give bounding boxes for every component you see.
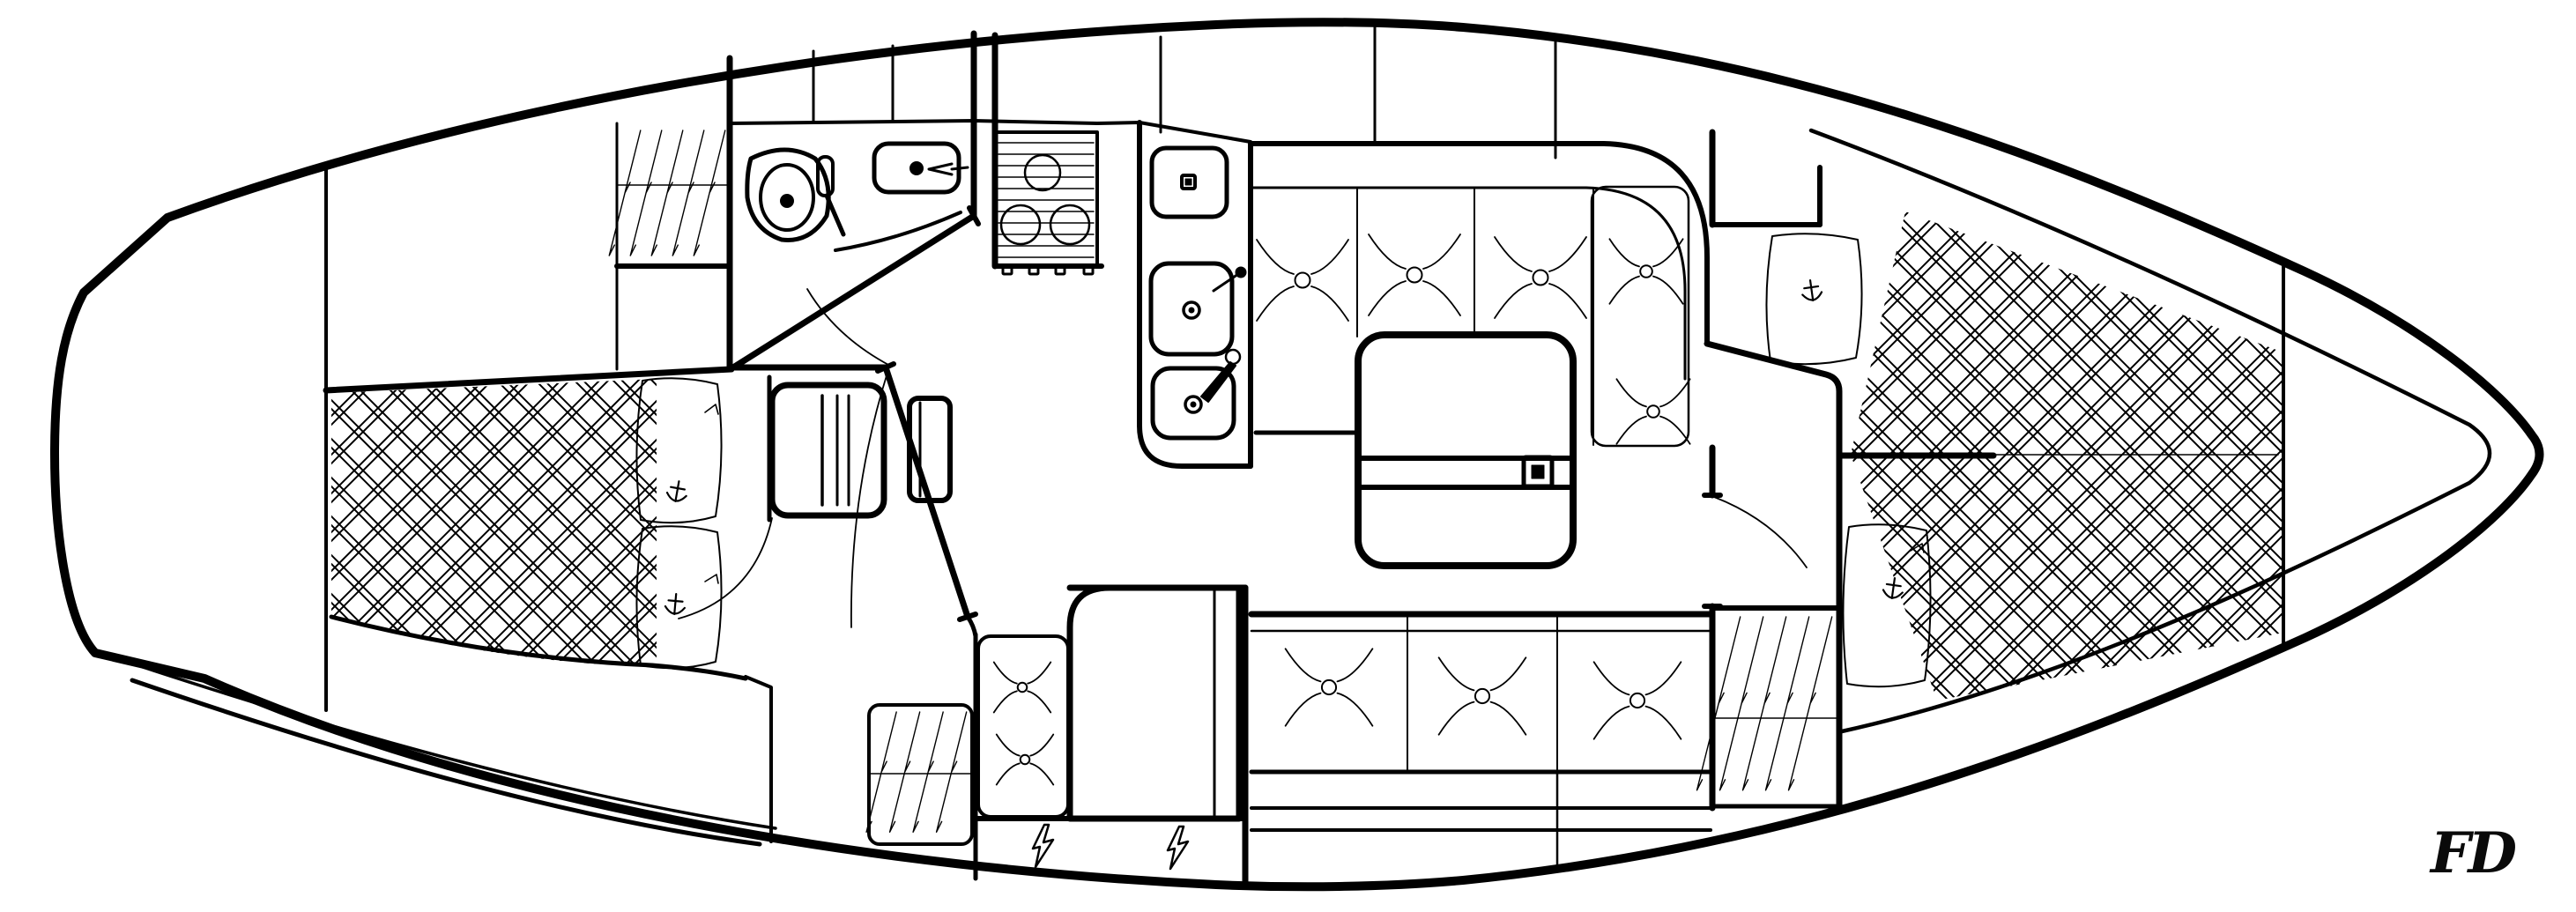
tuft-ray — [1311, 286, 1348, 321]
hatch-line — [2090, 0, 2576, 912]
hatch-line — [0, 0, 330, 912]
hatch-line — [1170, 0, 2316, 912]
tuft-ray — [1257, 286, 1294, 321]
hanging-locker — [869, 705, 972, 844]
tufted-button-icon — [1630, 693, 1644, 708]
hatch-line — [617, 0, 1763, 912]
hatch-line — [1479, 0, 2576, 912]
hatch-line — [1102, 0, 2247, 912]
tuft-ray — [1423, 234, 1460, 269]
hatch-line — [1160, 0, 2305, 912]
hatch-line — [733, 0, 1879, 912]
anchor-icon — [1882, 577, 1904, 600]
hatch-line — [2099, 0, 2576, 912]
hatch-line — [0, 0, 640, 912]
tuft-ray — [1028, 662, 1050, 683]
hatch-line — [1644, 0, 2576, 912]
tuft-ray — [1311, 240, 1348, 274]
hatch-line — [203, 0, 1348, 912]
hatch-line — [0, 0, 252, 912]
hatch-line — [620, 0, 1766, 912]
hatch-line — [2110, 0, 2576, 912]
hatch-line — [629, 0, 1775, 912]
port-corner-cushion — [1592, 187, 1689, 446]
tufted-button-icon — [1018, 683, 1028, 693]
hatch-line — [0, 0, 1105, 912]
hatch-line — [2246, 0, 2576, 912]
hatch-line — [1489, 0, 2576, 912]
hatch-line — [2101, 0, 2576, 912]
hanging-locker-hatch — [1788, 617, 1831, 790]
pillow-fold-mark — [705, 575, 718, 583]
hatch-line — [1673, 0, 2576, 912]
hanging-locker-hatch — [1697, 617, 1741, 790]
port-settee-back-outer — [1251, 144, 1707, 344]
tufted-button-icon — [1322, 680, 1336, 694]
hatch-line — [0, 0, 631, 912]
tuft-ray — [1616, 417, 1646, 444]
door-swing-arc — [807, 289, 890, 366]
hatch-line — [1636, 0, 2576, 912]
floorplan-canvas: FD — [0, 0, 2576, 912]
hatch-line — [1905, 0, 2576, 912]
hatch-line — [0, 0, 797, 912]
hatch-line — [192, 0, 1338, 912]
hanging-locker-hatch — [890, 712, 920, 832]
artist-signature: FD — [2429, 820, 2517, 886]
port-settee-back-inner — [1251, 188, 1685, 379]
hatch-line — [0, 0, 282, 912]
hanging-locker-hatch — [866, 712, 896, 832]
hanging-locker-hatch — [913, 712, 943, 832]
hatch-line — [1440, 0, 2576, 912]
hatch-line — [1091, 0, 2237, 912]
stove-foot — [1003, 266, 1012, 274]
hatch-line — [2207, 0, 2576, 912]
hatch-line — [0, 0, 805, 912]
head-diagonal-wall — [733, 216, 974, 367]
hanging-locker-hatch — [694, 130, 725, 256]
hatch-line — [1674, 0, 2576, 912]
hatch-line — [0, 0, 321, 912]
hatch-line — [0, 0, 1107, 912]
tuft-ray — [1491, 702, 1526, 735]
hatch-line — [0, 0, 243, 912]
tuft-ray — [1491, 657, 1526, 690]
hatch-line — [772, 0, 1918, 912]
basin-drain — [910, 162, 923, 174]
hatch-line — [2032, 0, 2576, 912]
hatch-line — [2071, 0, 2576, 912]
hatch-line — [2265, 0, 2576, 912]
tuft-ray — [1257, 240, 1294, 274]
hatch-line — [753, 0, 1898, 912]
hatch-line — [358, 0, 1503, 912]
basin-faucet-icon — [952, 167, 968, 169]
hatch-line — [0, 0, 486, 912]
lightning-bolt-icon — [1033, 825, 1053, 867]
tufted-button-icon — [1407, 268, 1422, 283]
nav-seat-cushion — [978, 636, 1068, 817]
toilet-pump-rod — [827, 196, 843, 234]
hatch-line — [2295, 0, 2576, 912]
tuft-ray — [1369, 234, 1406, 269]
hatch-line — [1121, 0, 2267, 912]
pillow-fold-mark — [705, 404, 718, 414]
aft-cabin-top-wall — [326, 369, 731, 390]
tuft-ray — [1028, 691, 1050, 712]
tuft-ray — [1286, 693, 1321, 726]
hatch-line — [2149, 0, 2576, 912]
stove-foot — [1029, 266, 1038, 274]
hatch-line — [659, 0, 1805, 912]
hatch-line — [626, 0, 1771, 912]
port-locker-band — [730, 121, 1251, 142]
hatch-line — [2226, 0, 2576, 912]
hatch-line — [86, 0, 1232, 912]
hatch-line — [2060, 0, 2576, 912]
tuft-ray — [1660, 379, 1690, 406]
hatch-line — [1907, 0, 2576, 912]
hatch-line — [222, 0, 1368, 912]
tufted-button-icon — [1475, 689, 1489, 703]
hanging-locker-hatch — [609, 130, 641, 256]
vberth-bulkhead — [1707, 344, 1839, 806]
hatch-line — [0, 0, 642, 912]
tuft-ray — [1439, 657, 1474, 690]
hatch-line — [1955, 0, 2576, 912]
tuft-ray — [1338, 693, 1373, 726]
hatch-line — [707, 0, 1852, 912]
hatch-line — [2129, 0, 2576, 912]
tufted-button-icon — [1647, 405, 1659, 418]
hatch-line — [0, 0, 448, 912]
salon-door-wall — [886, 367, 968, 617]
tuft-ray — [1549, 284, 1586, 318]
hatch-line — [619, 0, 1764, 912]
stove-foot — [1056, 266, 1065, 274]
hatch-line — [280, 0, 1426, 912]
tufted-button-icon — [1640, 265, 1652, 278]
lightning-bolt-icon — [1168, 827, 1188, 869]
tufted-button-icon — [1021, 755, 1030, 765]
hatch-line — [0, 0, 795, 912]
hatch-line — [2217, 0, 2576, 912]
sink-drain-dot — [1191, 402, 1196, 407]
tuft-ray — [1286, 649, 1321, 681]
tuft-ray — [1609, 239, 1639, 266]
hatch-line — [2256, 0, 2576, 912]
hanging-locker-hatch — [1743, 617, 1786, 790]
table-latch-dot — [1532, 465, 1544, 478]
galley-faucet — [1214, 272, 1241, 291]
tuft-ray — [994, 691, 1017, 712]
hatch-line — [1944, 0, 2576, 912]
hatch-line — [0, 0, 767, 912]
hatch-line — [1093, 0, 2238, 912]
galley-faucet — [1226, 350, 1240, 364]
tuft-ray — [1423, 281, 1460, 315]
hatch-line — [1983, 0, 2576, 912]
tuft-ray — [1549, 237, 1586, 271]
hatch-line — [1946, 0, 2576, 912]
hatch-line — [106, 0, 1251, 912]
tuft-ray — [1594, 707, 1629, 739]
hatch-line — [0, 0, 1058, 912]
hanging-locker-hatch — [630, 130, 662, 256]
hanging-locker-hatch — [1720, 617, 1763, 790]
hatch-line — [1063, 0, 2209, 912]
hatch-line — [116, 0, 1262, 912]
hatch-line — [0, 0, 1096, 912]
hatch-line — [1082, 0, 2228, 912]
hatch-line — [0, 0, 418, 912]
hatch-line — [705, 0, 1851, 912]
sink-drain-dot — [1185, 179, 1191, 185]
hatch-line — [1519, 0, 2576, 912]
door-swing-arc — [679, 518, 772, 619]
hatch-line — [0, 0, 1135, 912]
aft-berth-mattress — [0, 0, 1891, 912]
hatch-line — [183, 0, 1329, 912]
hatch-line — [2013, 0, 2576, 912]
tufted-button-icon — [1533, 271, 1548, 285]
hatch-line — [1179, 0, 2325, 912]
tuft-ray — [1646, 707, 1681, 739]
hanging-locker-hatch — [672, 130, 704, 256]
hatch-line — [1132, 0, 2277, 912]
hatch-line — [1985, 0, 2576, 912]
hatch-line — [0, 0, 786, 912]
hatch-line — [1595, 0, 2576, 912]
dinette-table — [1358, 335, 1573, 566]
hatch-line — [1169, 0, 2314, 912]
anchor-icon — [1800, 279, 1823, 302]
sailboat-floorplan-svg: FD — [0, 0, 2576, 912]
tuft-ray — [997, 734, 1020, 755]
hatch-line — [1481, 0, 2576, 912]
tuft-ray — [1609, 277, 1639, 304]
berth-pillow — [1843, 524, 1930, 686]
hatch-line — [1597, 0, 2576, 912]
hatch-line — [0, 0, 922, 912]
hatch-line — [1518, 0, 2576, 912]
anchor-icon — [666, 479, 689, 502]
tuft-ray — [1646, 662, 1681, 694]
hatch-line — [1567, 0, 2576, 912]
hatch-line — [2022, 0, 2576, 912]
hatch-line — [0, 0, 476, 912]
toilet-drain — [781, 195, 793, 207]
hatch-line — [145, 0, 1290, 912]
tuft-ray — [997, 763, 1020, 784]
berth-pillow — [636, 526, 721, 668]
hanging-locker-hatch — [1766, 617, 1809, 790]
hanging-locker-hatch — [937, 712, 967, 832]
basin-faucet-icon — [929, 164, 952, 174]
anchor-icon — [1800, 279, 1823, 302]
hatch-line — [0, 0, 291, 912]
door-swing-arc — [1714, 497, 1807, 567]
tufted-button-icon — [1295, 273, 1310, 288]
sink-drain-dot — [1189, 308, 1194, 313]
hatch-line — [0, 0, 902, 912]
hatch-line — [0, 0, 747, 912]
hatch-line — [0, 0, 485, 912]
hatch-line — [1442, 0, 2576, 912]
hatch-line — [2254, 0, 2576, 912]
tuft-ray — [1369, 281, 1406, 315]
stove-foot — [1084, 266, 1093, 274]
hanging-locker-hatch — [651, 130, 683, 256]
hatch-line — [610, 0, 1756, 912]
tuft-ray — [1653, 277, 1683, 304]
hatch-line — [703, 0, 1849, 912]
hatch-line — [1024, 0, 2170, 912]
anchor-icon — [1882, 577, 1904, 600]
tuft-ray — [1495, 237, 1532, 271]
tuft-ray — [1439, 702, 1474, 735]
door-hinge-tick — [960, 614, 976, 619]
tuft-ray — [1030, 763, 1053, 784]
tuft-ray — [994, 662, 1017, 683]
hatch-line — [2168, 0, 2576, 912]
vanity-counter-edge — [835, 212, 961, 250]
hatch-line — [1634, 0, 2576, 912]
hatch-line — [0, 0, 689, 912]
hatch-line — [0, 0, 331, 912]
anchor-icon — [664, 593, 686, 615]
hatch-line — [2138, 0, 2576, 912]
hatch-line — [2023, 0, 2576, 912]
tuft-ray — [1338, 649, 1373, 681]
tuft-ray — [1030, 734, 1053, 755]
hatch-line — [115, 0, 1260, 912]
anchor-icon — [666, 479, 689, 502]
hatch-line — [0, 0, 670, 912]
hatch-line — [194, 0, 1340, 912]
anchor-icon — [664, 593, 686, 615]
hatch-line — [0, 0, 825, 912]
hatch-line — [231, 0, 1377, 912]
hatch-line — [2140, 0, 2576, 912]
hatch-line — [233, 0, 1378, 912]
hatch-line — [1130, 0, 2275, 912]
berth-foot-step — [746, 677, 771, 842]
hatch-line — [2216, 0, 2576, 912]
tuft-ray — [1616, 379, 1646, 406]
stove-burner — [1025, 155, 1060, 190]
hatch-line — [0, 0, 437, 912]
tuft-ray — [1495, 284, 1532, 318]
tuft-ray — [1594, 662, 1629, 694]
hatch-line — [0, 0, 407, 912]
